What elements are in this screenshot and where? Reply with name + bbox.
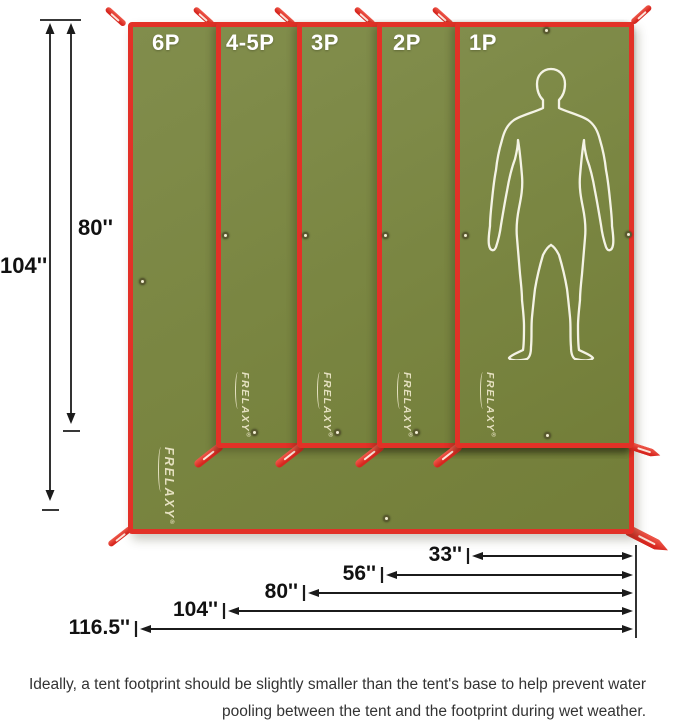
panel-label-6p: 6P (152, 30, 180, 56)
grommet-icon (413, 429, 420, 436)
caption-line-2: pooling between the tent and the footpri… (28, 698, 646, 721)
registered-mark: ® (168, 519, 174, 523)
grommet-icon (462, 232, 469, 239)
footprint-size-diagram: FRELAXY® FRELAXY® FRELAXY® FRELAXY® FREL… (0, 0, 679, 721)
brand-logo-text: FRELAXY (239, 372, 251, 432)
registered-mark: ® (245, 432, 251, 436)
corner-strap (104, 6, 127, 27)
grommet-icon (543, 27, 550, 34)
grommet-icon (139, 278, 146, 285)
registered-mark: ® (490, 432, 496, 436)
brand-logo-text: FRELAXY (321, 372, 333, 432)
panel-label-1p: 1P (469, 30, 497, 56)
brand-logo: FRELAXY® (480, 372, 496, 437)
panel-label-4-5p: 4-5P (226, 30, 274, 56)
dim-label-height-6p: 104'' (0, 253, 45, 279)
grommet-icon (625, 231, 632, 238)
corner-strap (630, 4, 653, 25)
brand-logo: FRELAXY® (397, 372, 413, 437)
grommet-icon (544, 432, 551, 439)
grommet-icon (334, 429, 341, 436)
registered-mark: ® (407, 432, 413, 436)
registered-mark: ® (327, 432, 333, 436)
dim-label-width-6p: 116.5'' (12, 616, 130, 640)
grommet-icon (302, 232, 309, 239)
brand-logo-text: FRELAXY (401, 372, 413, 432)
grommet-icon (222, 232, 229, 239)
brand-logo: FRELAXY® (235, 372, 251, 437)
grommet-icon (251, 429, 258, 436)
grommet-icon (382, 232, 389, 239)
caption-line-1: Ideally, a tent footprint should be slig… (28, 671, 646, 698)
dim-label-height-inner: 80'' (78, 215, 120, 241)
brand-logo: FRELAXY® (158, 447, 176, 524)
grommet-icon (383, 515, 390, 522)
brand-logo-text: FRELAXY (162, 447, 176, 519)
brand-logo: FRELAXY® (317, 372, 333, 437)
panel-label-2p: 2P (393, 30, 421, 56)
caption: Ideally, a tent footprint should be slig… (28, 671, 646, 721)
brand-logo-text: FRELAXY (484, 372, 496, 432)
panel-label-3p: 3P (311, 30, 339, 56)
